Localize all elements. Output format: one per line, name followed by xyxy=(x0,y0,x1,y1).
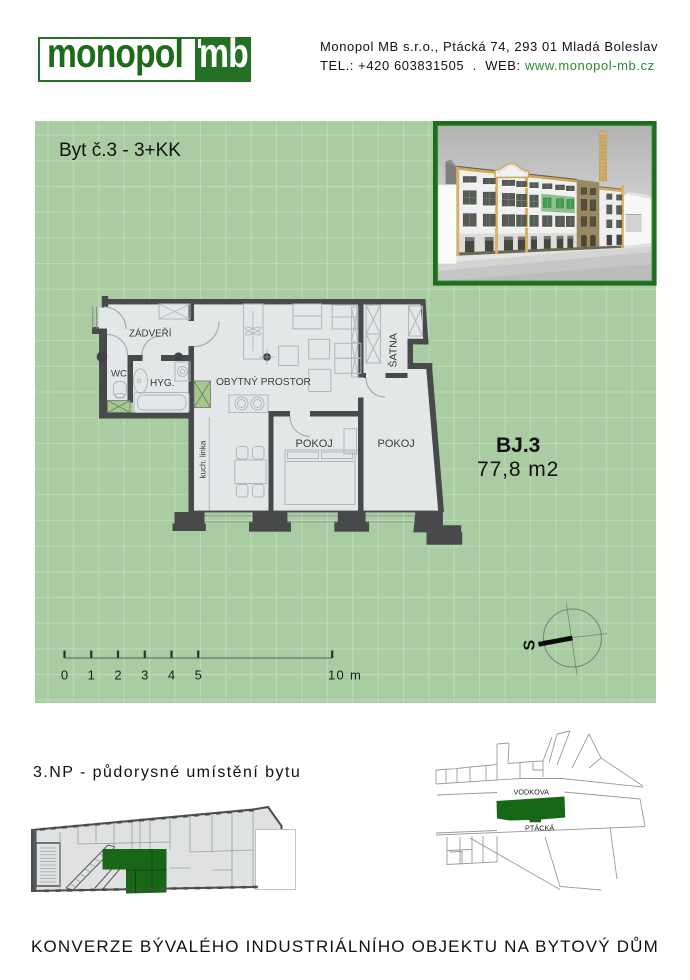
svg-text:2: 2 xyxy=(114,668,121,683)
svg-text:3: 3 xyxy=(141,668,148,683)
svg-text:kuch. linka: kuch. linka xyxy=(199,440,208,478)
svg-text:WC: WC xyxy=(111,369,127,380)
svg-text:HYG.: HYG. xyxy=(150,378,174,389)
svg-text:S: S xyxy=(522,640,539,651)
svg-text:PTÁCKÁ: PTÁCKÁ xyxy=(525,824,554,833)
svg-text:ŠATNA: ŠATNA xyxy=(387,333,400,367)
svg-text:1: 1 xyxy=(88,668,95,683)
svg-text:POKOJ: POKOJ xyxy=(378,438,415,450)
svg-text:4: 4 xyxy=(168,668,175,683)
svg-text:5: 5 xyxy=(195,668,202,683)
svg-text:POKOJ: POKOJ xyxy=(296,438,333,450)
svg-text:ZÁDVEŘÍ: ZÁDVEŘÍ xyxy=(129,329,172,340)
svg-text:0: 0 xyxy=(61,668,68,683)
svg-text:OBYTNÝ PROSTOR: OBYTNÝ PROSTOR xyxy=(216,375,311,388)
svg-text:VODKOVA: VODKOVA xyxy=(514,788,550,797)
svg-text:10 m: 10 m xyxy=(328,668,362,683)
